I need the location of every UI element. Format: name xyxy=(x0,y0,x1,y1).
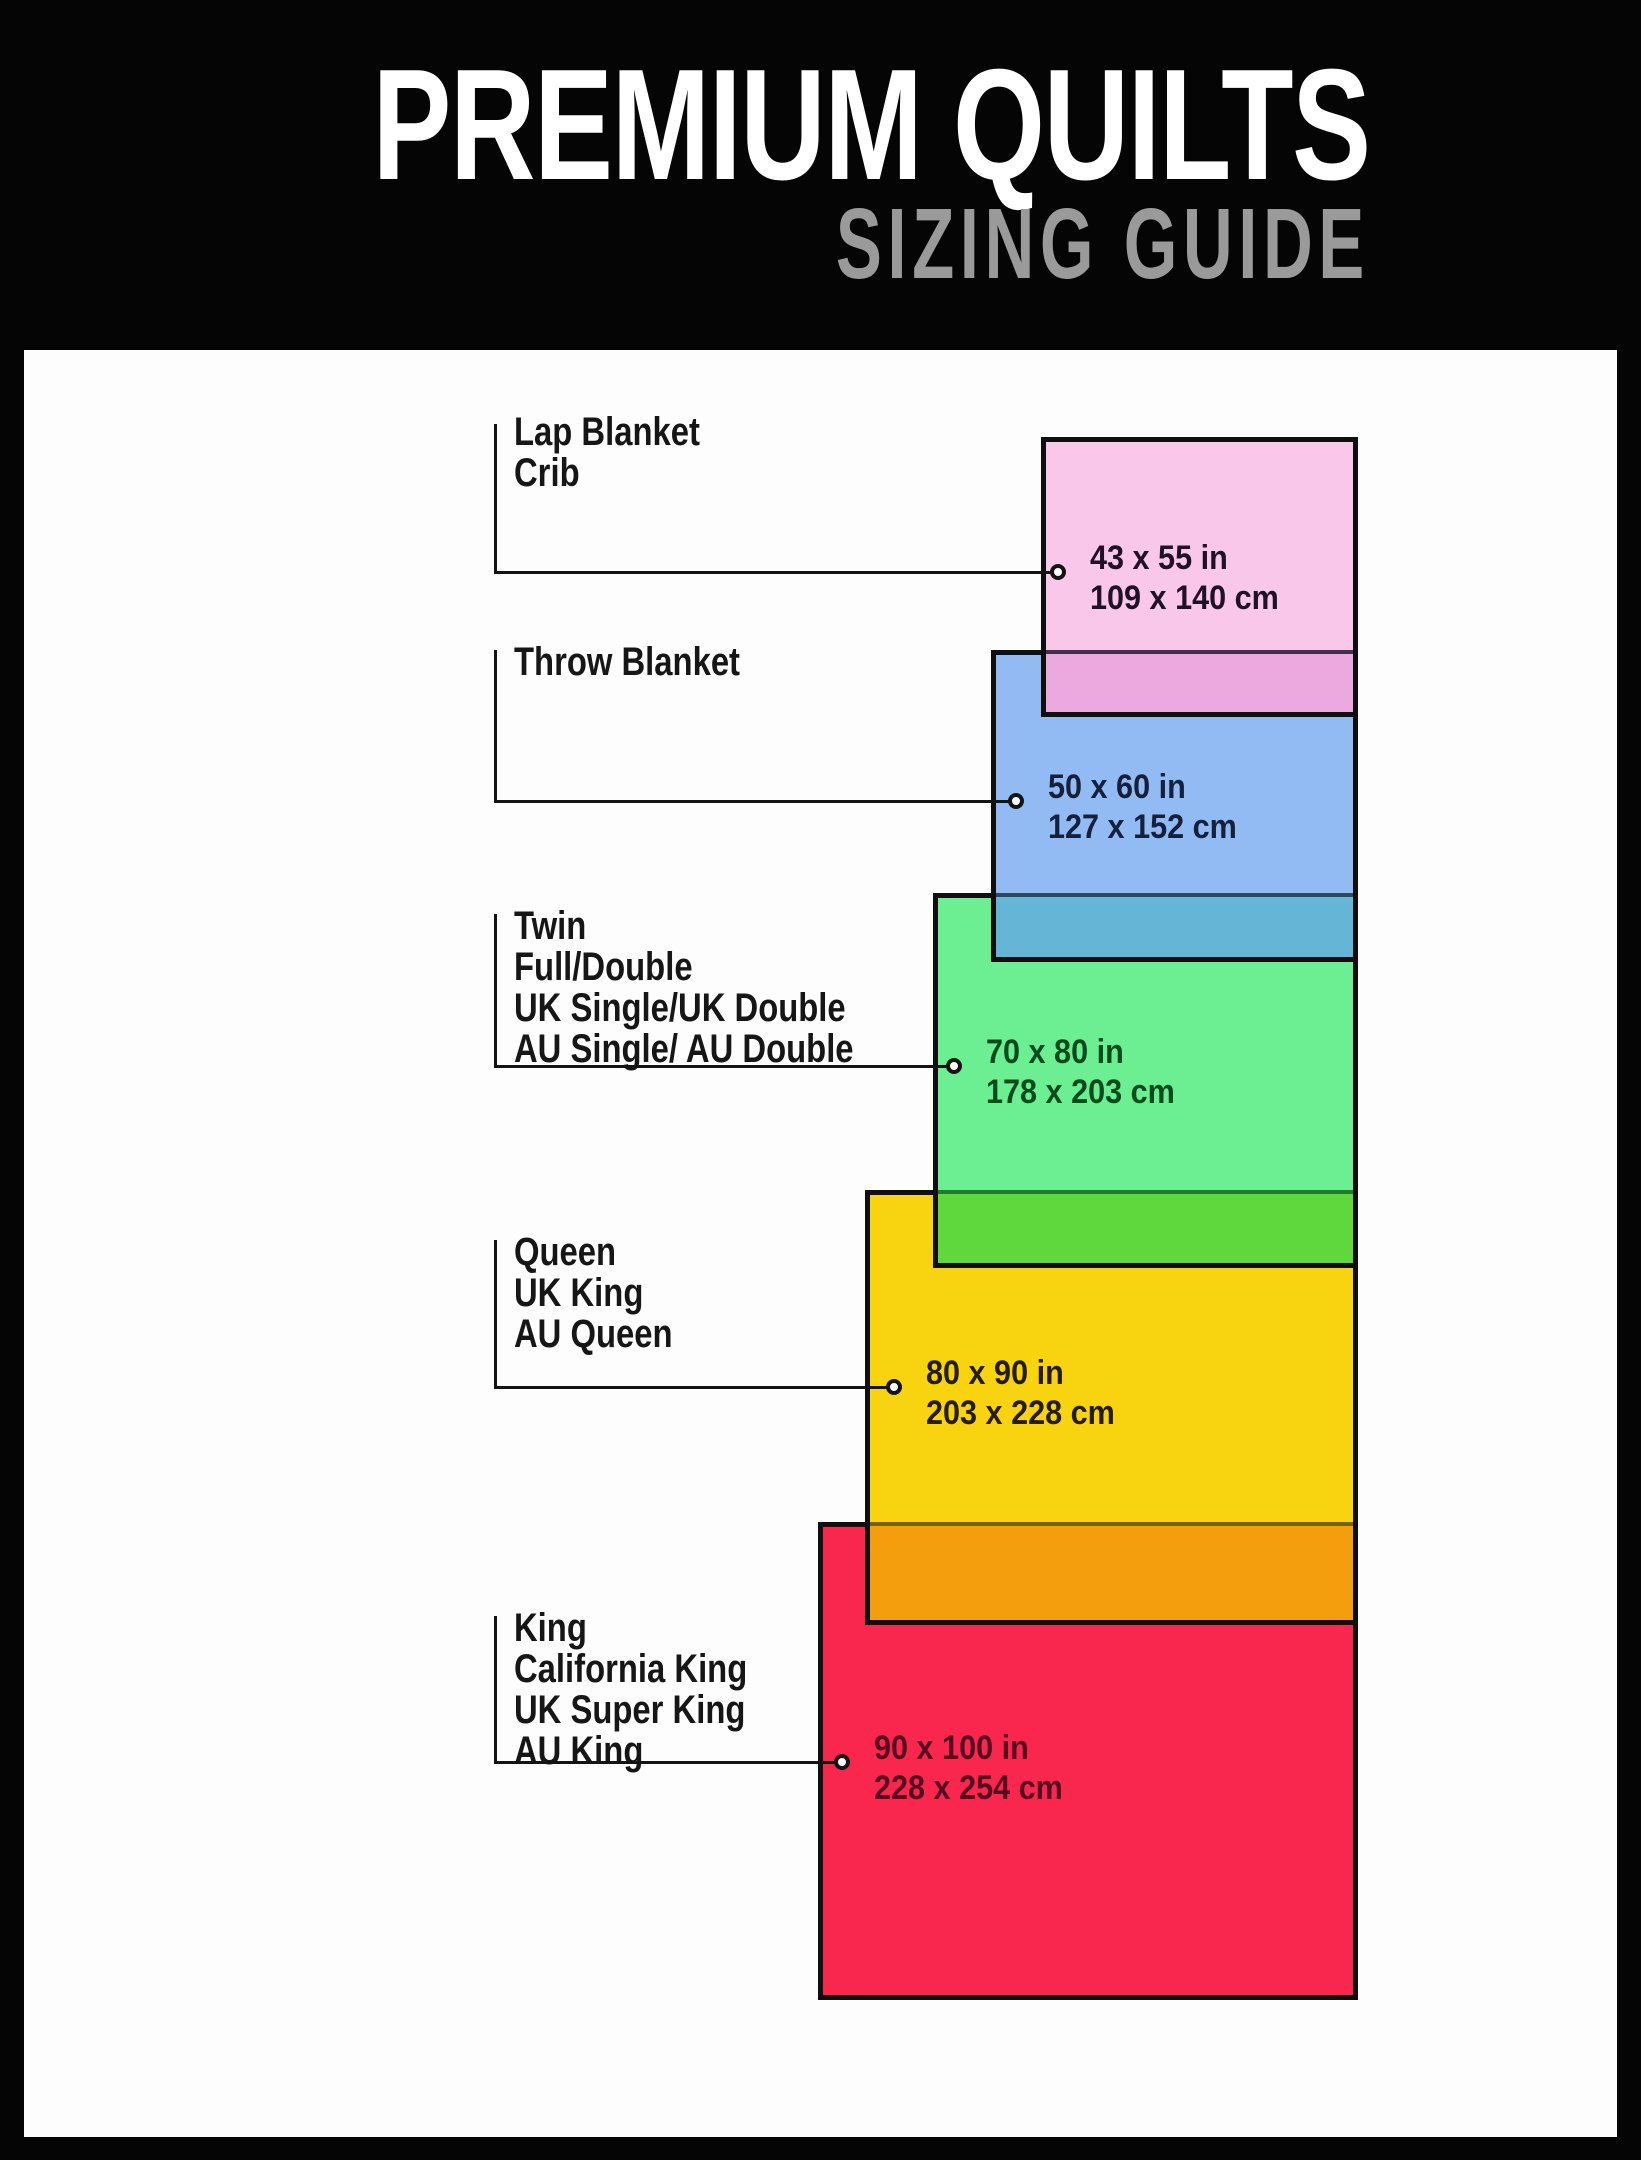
size-name-line: King xyxy=(514,1608,747,1649)
leader-dot-twin xyxy=(946,1058,962,1074)
dimension-centimeters: 178 x 203 cm xyxy=(986,1072,1175,1112)
size-name-line: UK Single/UK Double xyxy=(514,988,854,1029)
leader-dot-lap xyxy=(1050,564,1066,580)
size-name-line: Throw Blanket xyxy=(514,642,740,683)
size-name-line: AU Single/ AU Double xyxy=(514,1029,854,1070)
dimension-centimeters: 109 x 140 cm xyxy=(1090,578,1279,618)
dimension-inches: 50 x 60 in xyxy=(1048,767,1237,807)
overlap-band-twin-queen xyxy=(938,1190,1353,1263)
leader-vline-twin xyxy=(494,914,497,1067)
dimension-centimeters: 127 x 152 cm xyxy=(1048,807,1237,847)
size-dimensions-king: 90 x 100 in 228 x 254 cm xyxy=(874,1728,1063,1808)
dimension-centimeters: 203 x 228 cm xyxy=(926,1393,1115,1433)
leader-dot-queen xyxy=(886,1379,902,1395)
leader-hline-twin xyxy=(494,1065,954,1068)
size-name-line: California King xyxy=(514,1649,747,1690)
leader-vline-lap xyxy=(494,424,497,573)
leader-hline-throw xyxy=(494,800,1016,803)
page-title-row: PREMIUM QUILTS xyxy=(40,46,1370,204)
overlap-band-throw-twin xyxy=(996,893,1353,957)
leader-vline-queen xyxy=(494,1240,497,1388)
size-names-lap-crib: Lap Blanket Crib xyxy=(514,412,700,494)
leader-hline-lap xyxy=(494,571,1058,574)
size-dimensions-throw: 50 x 60 in 127 x 152 cm xyxy=(1048,767,1237,847)
overlap-band-queen-king xyxy=(870,1522,1353,1620)
size-name-line: Crib xyxy=(514,453,700,494)
size-dimensions-lap-crib: 43 x 55 in 109 x 140 cm xyxy=(1090,538,1279,618)
size-name-line: Twin xyxy=(514,906,854,947)
dimension-inches: 43 x 55 in xyxy=(1090,538,1279,578)
page-title: PREMIUM QUILTS xyxy=(373,46,1370,204)
leader-dot-king xyxy=(834,1754,850,1770)
dimension-inches: 70 x 80 in xyxy=(986,1032,1175,1072)
size-dimensions-queen: 80 x 90 in 203 x 228 cm xyxy=(926,1353,1115,1433)
leader-vline-throw xyxy=(494,650,497,801)
size-names-king: King California King UK Super King AU Ki… xyxy=(514,1608,747,1772)
dimension-inches: 80 x 90 in xyxy=(926,1353,1115,1393)
title-block: PREMIUM QUILTS SIZING GUIDE xyxy=(40,46,1370,294)
size-name-line: UK King xyxy=(514,1273,673,1314)
size-names-queen: Queen UK King AU Queen xyxy=(514,1232,673,1355)
page-subtitle: SIZING GUIDE xyxy=(836,194,1370,294)
leader-dot-throw xyxy=(1008,793,1024,809)
leader-vline-king xyxy=(494,1616,497,1763)
overlap-band-lap-throw xyxy=(1046,650,1353,712)
leader-hline-queen xyxy=(494,1386,894,1389)
leader-hline-king xyxy=(494,1761,842,1764)
size-name-line: Lap Blanket xyxy=(514,412,700,453)
size-names-throw: Throw Blanket xyxy=(514,642,740,683)
size-names-twin: Twin Full/Double UK Single/UK Double AU … xyxy=(514,906,854,1070)
size-name-line: Queen xyxy=(514,1232,673,1273)
size-dimensions-twin: 70 x 80 in 178 x 203 cm xyxy=(986,1032,1175,1112)
dimension-inches: 90 x 100 in xyxy=(874,1728,1063,1768)
size-name-line: AU Queen xyxy=(514,1314,673,1355)
size-name-line: Full/Double xyxy=(514,947,854,988)
size-name-line: UK Super King xyxy=(514,1690,747,1731)
infographic-canvas: PREMIUM QUILTS SIZING GUIDE Lap Blank xyxy=(0,0,1641,2160)
dimension-centimeters: 228 x 254 cm xyxy=(874,1768,1063,1808)
size-name-line: AU King xyxy=(514,1731,747,1772)
header: PREMIUM QUILTS SIZING GUIDE xyxy=(0,0,1641,350)
